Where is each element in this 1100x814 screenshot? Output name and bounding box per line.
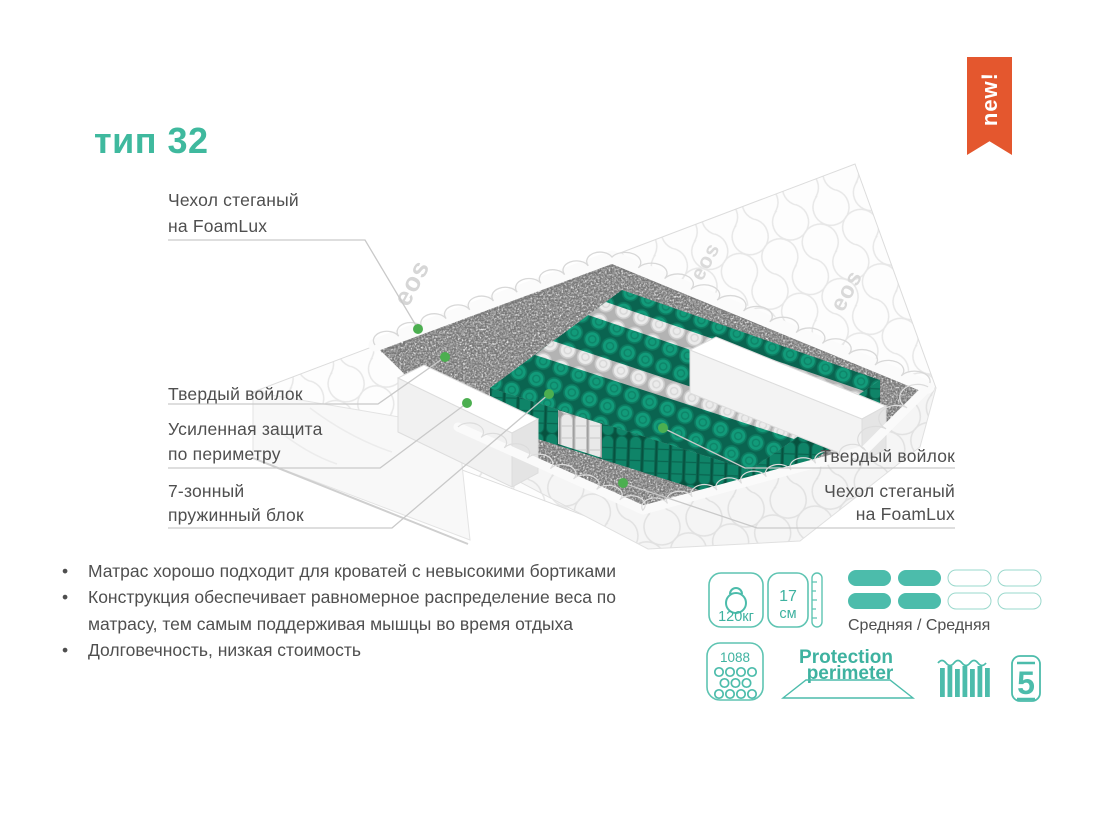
callout-text: Твердый войлок <box>168 381 303 407</box>
warranty-badge: 5 <box>1012 656 1040 701</box>
callout-text: Твердый войлок <box>820 443 955 469</box>
callout-cover-right: Чехол стеганый на FoamLux <box>824 480 955 526</box>
firmness-pill-filled <box>848 570 891 586</box>
callout-perimeter-protection: Усиленная защита по периметру <box>168 417 323 467</box>
feature-item: • Долговечность, низкая стоимость <box>60 637 645 663</box>
firmness-pill-filled <box>898 593 941 609</box>
product-infographic: eos eos eos 120кг 17 см <box>0 0 1100 814</box>
feature-item: • Матрас хорошо подходит для кроватей с … <box>60 558 645 584</box>
firmness-scale: Средняя / Средняя <box>848 570 1041 634</box>
svg-text:см: см <box>779 606 796 622</box>
new-ribbon-label: new! <box>977 72 1003 126</box>
firmness-pill-empty <box>998 593 1041 609</box>
features-list: • Матрас хорошо подходит для кроватей с … <box>60 558 645 664</box>
callout-felt-left: Твердый войлок <box>168 381 303 407</box>
feature-text: Конструкция обеспечивает равномерное рас… <box>88 584 645 637</box>
callout-text: по периметру <box>168 442 323 467</box>
callout-text: пружинный блок <box>168 503 304 527</box>
max-weight-badge: 120кг <box>709 573 763 627</box>
callout-text: Чехол стеганый <box>168 187 299 213</box>
feature-item: • Конструкция обеспечивает равномерное р… <box>60 584 645 637</box>
svg-text:5: 5 <box>1017 665 1035 701</box>
callout-text: Усиленная защита <box>168 417 323 442</box>
bullet-icon: • <box>60 637 88 663</box>
protection-perimeter-badge: Protection perimeter <box>783 647 913 698</box>
bullet-icon: • <box>60 558 88 584</box>
svg-text:1088: 1088 <box>720 650 750 665</box>
svg-text:eos: eos <box>387 255 436 311</box>
ruler-icon <box>812 573 822 627</box>
new-ribbon: new! <box>967 57 1012 155</box>
svg-text:perimeter: perimeter <box>807 663 894 684</box>
feature-text: Долговечность, низкая стоимость <box>88 637 361 663</box>
firmness-pill-filled <box>898 570 941 586</box>
firmness-pill-empty <box>998 570 1041 586</box>
eos-watermark: eos <box>387 255 436 311</box>
page-title: тип 32 <box>94 120 209 162</box>
callout-felt-right: Твердый войлок <box>820 443 955 469</box>
callout-text: 7-зонный <box>168 479 304 503</box>
firmness-pill-empty <box>948 593 991 609</box>
firmness-label: Средняя / Средняя <box>848 617 990 634</box>
height-badge: 17 см <box>768 573 808 627</box>
callout-spring-block: 7-зонный пружинный блок <box>168 479 304 527</box>
spring-bars-icon <box>938 661 990 698</box>
callout-text: на FoamLux <box>168 213 299 239</box>
springs-dots-icon <box>715 668 756 698</box>
callout-text: на FoamLux <box>824 503 955 526</box>
springs-count-badge: 1088 <box>707 643 763 700</box>
firmness-pill-empty <box>948 570 991 586</box>
bullet-icon: • <box>60 584 88 637</box>
svg-text:120кг: 120кг <box>718 609 754 625</box>
svg-text:17: 17 <box>779 588 797 605</box>
feature-text: Матрас хорошо подходит для кроватей с не… <box>88 558 616 584</box>
firmness-pill-filled <box>848 593 891 609</box>
callout-text: Чехол стеганый <box>824 480 955 503</box>
callout-cover-left: Чехол стеганый на FoamLux <box>168 187 299 239</box>
